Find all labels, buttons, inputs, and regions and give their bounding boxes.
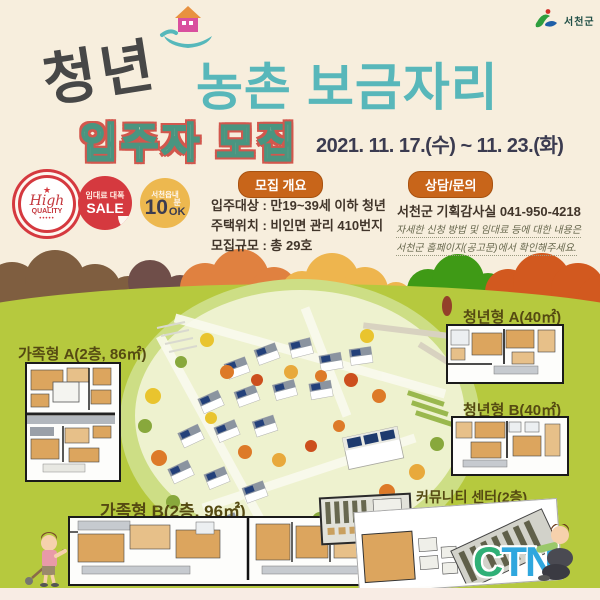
floor-plan-youth-a — [448, 326, 558, 378]
badge-rent-sale-line2: SALE — [86, 201, 123, 216]
overview-list: 입주대상 : 만19~39세 이하 청년 주택위치 : 비인면 관리 410번지… — [211, 196, 386, 256]
contact-note-line2: 서천군 홈페이지(공고문)에서 확인해주세요. — [396, 239, 577, 256]
kid-playing-character — [22, 532, 78, 588]
floor-plan-family-a — [27, 364, 115, 476]
badge-high-quality: ★ High QUALITY ••••• — [18, 175, 76, 233]
kid-sliding-character — [534, 524, 582, 586]
plan-card-youth-b — [451, 416, 569, 476]
badge-ten-minutes-row: 10 분 OK — [145, 199, 186, 217]
seocheon-logo-icon — [534, 8, 560, 32]
poster-title-youth: 청년 — [36, 18, 162, 119]
section-heading-overview: 모집 개요 — [238, 171, 323, 198]
badge-ten-minutes: 서천읍내 10 분 OK — [140, 178, 190, 228]
badge-rent-sale: 임대료 대폭 SALE — [78, 176, 132, 230]
plan-card-youth-a — [446, 324, 564, 384]
badge-rent-sale-line1: 임대료 대폭 — [85, 191, 124, 201]
poster-root: 서천군 청년 농촌 보금자리 입주자 모집 2021. 11. 17.(수) ~… — [0, 0, 600, 600]
floor-plan-youth-b — [453, 418, 563, 470]
badge-high-quality-dots: ••••• — [39, 216, 55, 222]
overview-item-scale: 모집규모 : 총 29호 — [211, 236, 386, 256]
ctn-logo-c: C — [473, 538, 501, 585]
recruit-subtitle: 입주자 모집 — [80, 109, 298, 169]
overview-item-location: 주택위치 : 비인면 관리 410번지 — [211, 216, 386, 236]
section-heading-contact: 상담/문의 — [408, 171, 493, 198]
bottom-margin-strip — [0, 588, 600, 600]
recruit-date-range: 2021. 11. 17.(수) ~ 11. 23.(화) — [316, 129, 563, 158]
badge-ten-minutes-number: 10 — [145, 199, 168, 217]
contact-note-line1: 자세한 신청 방법 및 임대료 등에 대한 내용은 — [396, 221, 581, 238]
hand-house-icon — [158, 2, 218, 52]
seocheon-county-logo: 서천군 — [534, 8, 595, 32]
badge-high-quality-line1: High — [30, 194, 65, 208]
seocheon-logo-text: 서천군 — [564, 13, 595, 28]
overview-item-target: 입주대상 : 만19~39세 이하 청년 — [211, 196, 386, 216]
contact-office-phone: 서천군 기획감사실 041-950-4218 — [397, 201, 581, 220]
badge-ten-minutes-ok: OK — [169, 207, 186, 217]
badge-high-quality-line2: QUALITY — [32, 208, 63, 216]
plan-card-family-a — [25, 362, 121, 482]
plan-label-family-a: 가족형 A(2층, 86㎡) — [18, 343, 147, 364]
